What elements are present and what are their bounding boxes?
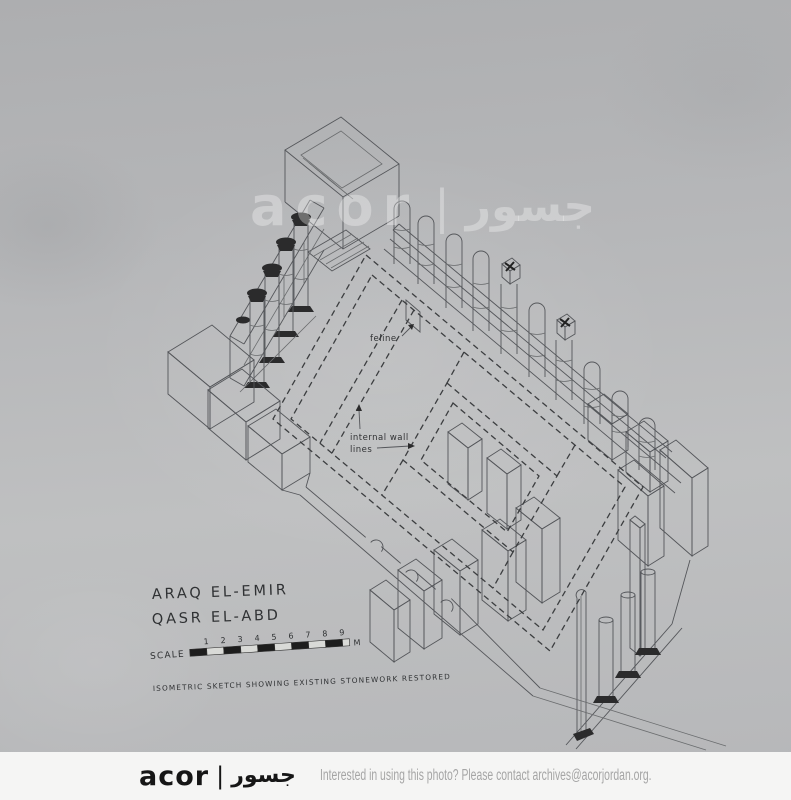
east-corner-slabs [588, 394, 708, 624]
capital-block [502, 258, 520, 284]
internal-wall-dashes [273, 255, 643, 651]
scale-tick-label: 4 [254, 634, 260, 643]
logo-arabic-text: جسور [231, 765, 296, 787]
drawing-title-line2: QASR EL-ABD [152, 608, 281, 628]
archive-photo-page: feline internal wall lines ARAQ EL-EMIR … [0, 0, 791, 800]
northeast-wall [384, 224, 681, 493]
scale-tick-label: 1 [203, 637, 209, 646]
photograph-background: feline internal wall lines ARAQ EL-EMIR … [0, 0, 791, 752]
stair-tower [285, 117, 399, 271]
drawing-caption: ISOMETRIC SKETCH SHOWING EXISTING STONEW… [153, 672, 451, 693]
scale-tick-label: 2 [220, 636, 226, 645]
podium-lines [533, 688, 726, 750]
northeast-colonnade [394, 201, 655, 470]
isometric-sketch: feline internal wall lines ARAQ EL-EMIR … [0, 0, 791, 752]
drawing-title-line1: ARAQ EL-EMIR [152, 582, 289, 603]
lines-label: lines [350, 445, 372, 455]
feline-annotation: feline [370, 324, 414, 344]
scale-unit-label: M [353, 638, 361, 647]
southwest-stylobate [282, 473, 540, 696]
scale-tick-label: 3 [237, 635, 243, 644]
fallen-blocks [370, 423, 560, 662]
scale-tick-label: 5 [271, 633, 277, 642]
logo-separator: | [216, 764, 224, 788]
scale-bar: SCALE 1 2 3 4 5 6 7 8 9 M [149, 627, 361, 662]
footer-contact-text: Interested in using this photo? Please c… [320, 767, 652, 785]
scale-tick-label: 9 [339, 628, 345, 637]
scale-tick-label: 7 [305, 630, 311, 639]
feline-label: feline [370, 334, 397, 344]
west-corner-blocks [168, 325, 310, 490]
logo-latin-text: acor [139, 763, 209, 790]
title-block: ARAQ EL-EMIR QASR EL-ABD [152, 582, 289, 628]
acor-logo: acor | جسور [139, 763, 296, 790]
scale-tick-label: 8 [322, 629, 328, 638]
northwest-colonnade [240, 213, 316, 393]
internal-wall-label: internal wall [350, 433, 409, 443]
capital-block [557, 314, 575, 340]
internal-wall-annotation: internal wall lines [350, 404, 415, 455]
feline-relief-block [406, 300, 420, 332]
scale-tick-label: 6 [288, 631, 294, 640]
scale-label: SCALE [150, 650, 185, 662]
footer-bar: acor | جسور Interested in using this pho… [0, 752, 791, 800]
